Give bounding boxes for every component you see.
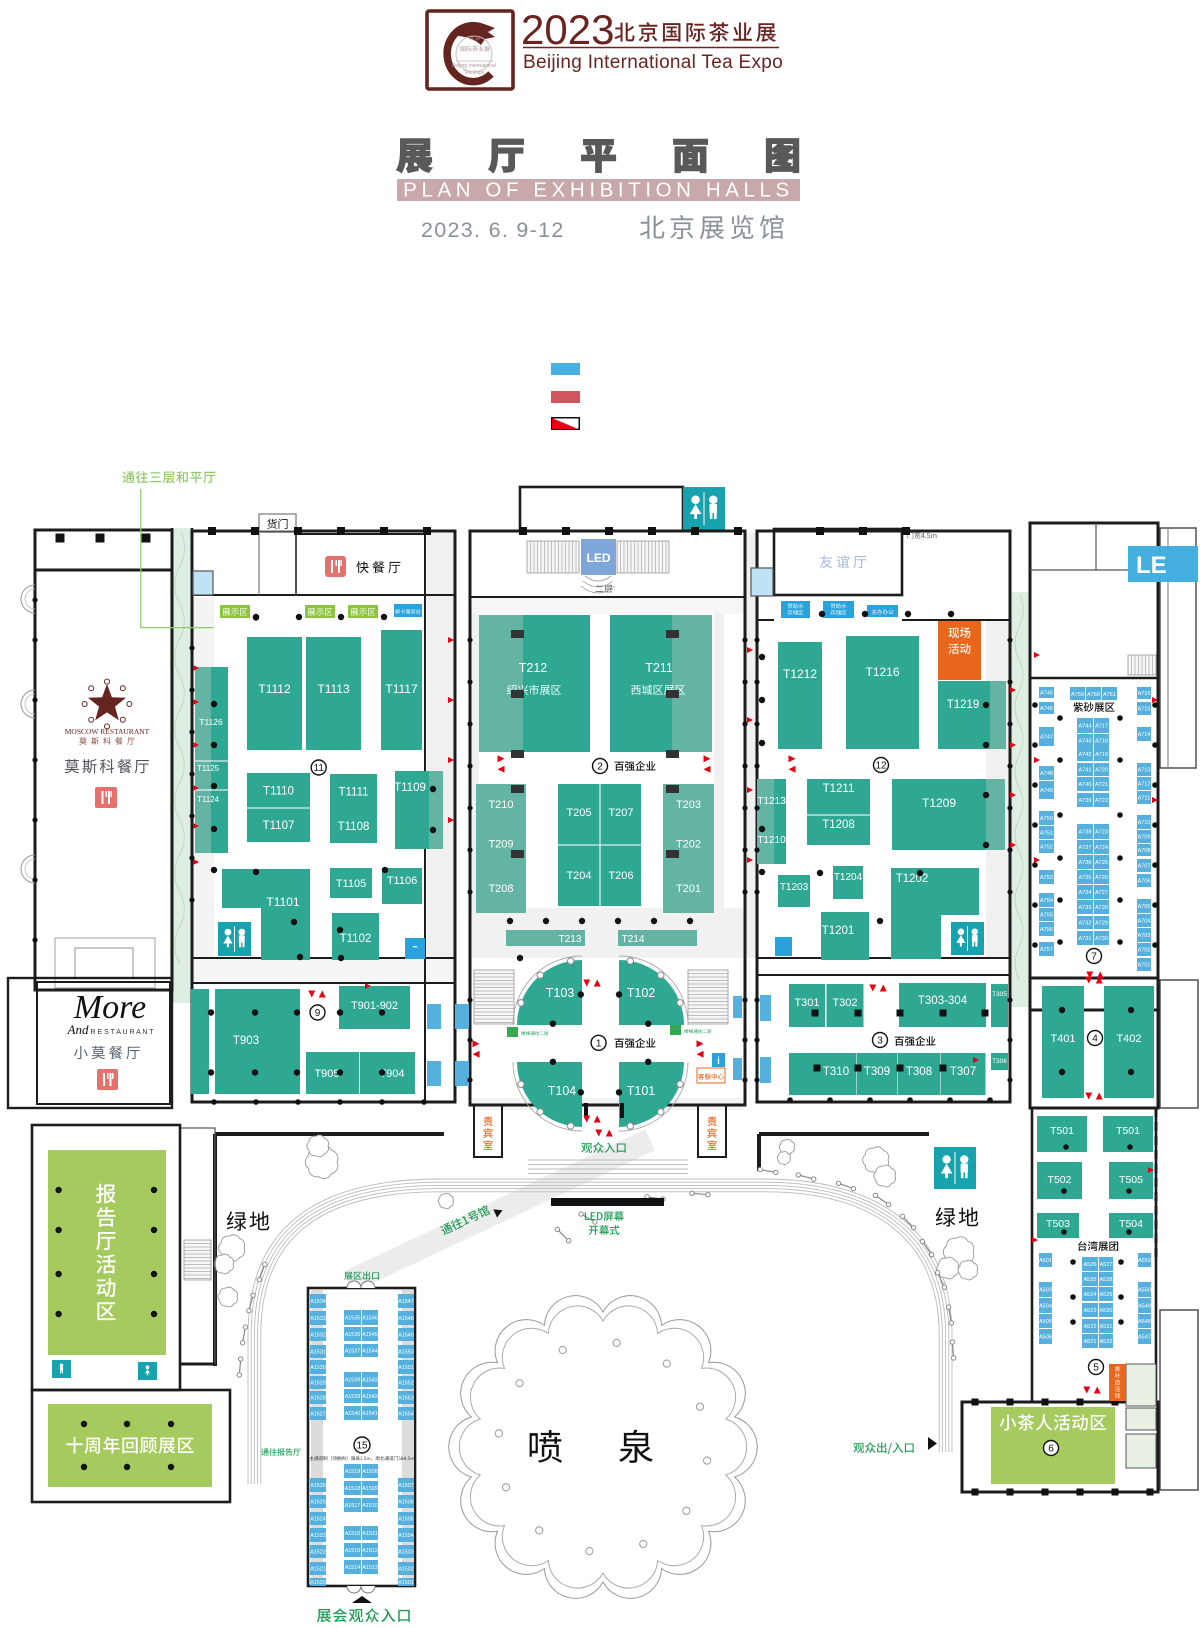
svg-text:More: More: [73, 989, 146, 1026]
svg-text:A1549: A1549: [398, 1332, 414, 1338]
svg-text:T1108: T1108: [338, 821, 370, 833]
svg-text:A732: A732: [1078, 920, 1091, 926]
svg-text:T401: T401: [1050, 1033, 1075, 1045]
svg-text:T210: T210: [488, 799, 513, 811]
svg-text:T207: T207: [608, 807, 633, 819]
svg-text:A1516: A1516: [345, 1531, 361, 1537]
svg-text:T1110: T1110: [263, 786, 294, 798]
svg-text:A1541: A1541: [362, 1411, 378, 1417]
svg-text:A1520: A1520: [310, 1580, 326, 1586]
svg-text:A750: A750: [1040, 816, 1053, 822]
svg-text:T103: T103: [546, 986, 575, 1000]
svg-text:2023: 2023: [521, 6, 614, 53]
svg-text:A501: A501: [1039, 1258, 1052, 1264]
svg-text:Beijing International Tea Expo: Beijing International Tea Expo: [523, 52, 783, 73]
svg-text:A1551: A1551: [398, 1365, 414, 1371]
svg-text:T1219: T1219: [947, 699, 980, 711]
svg-text:A530: A530: [1099, 1308, 1112, 1314]
svg-text:A743: A743: [1078, 738, 1091, 744]
svg-text:7: 7: [1091, 952, 1097, 963]
svg-text:T303-304: T303-304: [918, 995, 968, 1007]
svg-text:15: 15: [356, 1441, 368, 1452]
svg-text:T202: T202: [676, 838, 701, 850]
svg-text:T505: T505: [1119, 1174, 1143, 1186]
svg-text:T310: T310: [823, 1066, 849, 1078]
svg-text:A715: A715: [1137, 706, 1150, 712]
svg-text:A755: A755: [1040, 912, 1053, 918]
svg-text:A753: A753: [1040, 875, 1053, 881]
svg-text:T1126: T1126: [199, 717, 223, 727]
svg-text:A1550: A1550: [398, 1349, 414, 1355]
svg-text:A505: A505: [1039, 1319, 1052, 1325]
svg-text:A1518: A1518: [345, 1486, 361, 1492]
svg-text:T213: T213: [559, 934, 582, 945]
svg-text:T402: T402: [1116, 1033, 1141, 1045]
svg-text:A1503: A1503: [398, 1549, 414, 1555]
svg-text:A521: A521: [1083, 1339, 1096, 1345]
svg-text:A754: A754: [1040, 898, 1053, 904]
svg-text:A1506: A1506: [398, 1499, 414, 1505]
svg-text:A738: A738: [1078, 829, 1091, 835]
svg-text:A706: A706: [1137, 878, 1150, 884]
svg-text:A1521: A1521: [310, 1566, 326, 1572]
svg-text:A1508: A1508: [362, 1469, 378, 1475]
svg-text:A728: A728: [1095, 905, 1108, 911]
svg-text:T302: T302: [832, 997, 857, 1009]
svg-text:T1107: T1107: [263, 820, 295, 832]
svg-text:A704: A704: [1137, 918, 1150, 924]
svg-text:~: ~: [412, 942, 417, 952]
svg-text:T901-902: T901-902: [351, 1000, 398, 1012]
svg-text:A1511: A1511: [362, 1531, 377, 1537]
svg-text:A739: A739: [1078, 798, 1091, 804]
svg-text:A752: A752: [1040, 844, 1053, 850]
svg-text:And: And: [67, 1022, 89, 1037]
svg-text:T903: T903: [233, 1035, 259, 1047]
svg-text:A716: A716: [1137, 691, 1150, 697]
svg-text:T501: T501: [1116, 1125, 1140, 1137]
svg-text:A711: A711: [1138, 795, 1151, 801]
svg-text:T206: T206: [608, 870, 633, 882]
svg-text:T1125: T1125: [197, 764, 220, 773]
svg-text:A1538: A1538: [345, 1377, 361, 1383]
svg-text:A760: A760: [1087, 692, 1100, 698]
svg-text:A1537: A1537: [345, 1348, 361, 1354]
svg-text:T1102: T1102: [340, 933, 372, 945]
svg-text:T201: T201: [676, 883, 701, 895]
svg-text:T503: T503: [1046, 1218, 1070, 1230]
svg-text:A712: A712: [1137, 781, 1150, 787]
svg-text:A719: A719: [1095, 752, 1108, 758]
svg-text:A532: A532: [1099, 1339, 1112, 1345]
svg-text:A1510: A1510: [362, 1503, 378, 1509]
svg-text:A525: A525: [1083, 1277, 1096, 1283]
svg-text:T301: T301: [794, 997, 819, 1009]
svg-text:A1526: A1526: [310, 1483, 326, 1489]
svg-text:A523: A523: [1083, 1308, 1096, 1314]
svg-text:A1535: A1535: [345, 1315, 361, 1321]
svg-text:Tea Expo: Tea Expo: [464, 70, 485, 76]
svg-text:A718: A718: [1095, 738, 1108, 744]
svg-text:A722: A722: [1095, 798, 1108, 804]
svg-text:T1111: T1111: [338, 787, 368, 799]
svg-text:A1546: A1546: [362, 1315, 378, 1321]
svg-text:4: 4: [1092, 1034, 1098, 1045]
svg-text:A550: A550: [1138, 1287, 1151, 1293]
svg-text:A1523: A1523: [310, 1533, 326, 1539]
svg-text:A1534: A1534: [310, 1299, 326, 1305]
svg-text:A1547: A1547: [398, 1299, 414, 1305]
svg-text:T1117: T1117: [385, 682, 418, 696]
svg-text:A547: A547: [1138, 1334, 1151, 1340]
svg-text:T212: T212: [519, 661, 548, 675]
svg-text:A705: A705: [1137, 904, 1150, 910]
svg-text:T101: T101: [627, 1084, 656, 1098]
svg-text:T308: T308: [906, 1066, 932, 1078]
svg-text:6: 6: [1048, 1444, 1054, 1455]
svg-text:T203: T203: [676, 799, 701, 811]
svg-text:T205: T205: [566, 807, 591, 819]
svg-text:A524: A524: [1083, 1292, 1096, 1298]
svg-text:T104: T104: [548, 1084, 577, 1098]
svg-text:A549: A549: [1138, 1303, 1151, 1309]
svg-text:T1203: T1203: [780, 882, 809, 893]
svg-text:A1528: A1528: [310, 1395, 326, 1401]
svg-text:T309: T309: [864, 1066, 890, 1078]
svg-text:A744: A744: [1078, 723, 1091, 729]
svg-text:A726: A726: [1095, 875, 1108, 881]
svg-text:R E S T A U R A N T: R E S T A U R A N T: [90, 1029, 154, 1036]
svg-text:2: 2: [597, 762, 603, 773]
svg-text:i: i: [717, 1056, 720, 1067]
svg-text:A737: A737: [1078, 845, 1091, 851]
svg-text:T1216: T1216: [865, 665, 899, 679]
svg-text:11: 11: [314, 763, 325, 774]
svg-text:A1540: A1540: [345, 1411, 361, 1417]
svg-text:A725: A725: [1095, 860, 1108, 866]
svg-text:MOSCOW RESTAURANT: MOSCOW RESTAURANT: [65, 727, 150, 736]
svg-text:T1124: T1124: [197, 795, 220, 804]
svg-text:5: 5: [1093, 1363, 1099, 1374]
svg-text:Beijing International: Beijing International: [452, 63, 496, 69]
svg-text:A745: A745: [1040, 690, 1053, 696]
svg-text:A1527: A1527: [310, 1411, 326, 1417]
svg-text:T1201: T1201: [822, 925, 855, 937]
svg-text:A727: A727: [1095, 890, 1108, 896]
svg-text:T209: T209: [488, 838, 513, 850]
svg-text:A703: A703: [1137, 933, 1150, 939]
svg-text:A742: A742: [1078, 752, 1091, 758]
svg-text:12: 12: [875, 761, 887, 772]
svg-text:T1105: T1105: [336, 878, 366, 890]
svg-text:T1112: T1112: [258, 682, 291, 696]
svg-text:A1519: A1519: [345, 1469, 361, 1475]
svg-text:A717: A717: [1095, 723, 1108, 729]
svg-text:A709: A709: [1137, 834, 1150, 840]
svg-text:A1545: A1545: [362, 1332, 378, 1338]
svg-text:T1204: T1204: [834, 872, 863, 883]
svg-text:T305: T305: [992, 991, 1007, 998]
svg-text:A1513: A1513: [362, 1565, 378, 1571]
svg-text:A1530: A1530: [310, 1365, 326, 1371]
svg-text:A1502: A1502: [398, 1566, 414, 1572]
svg-text:T905: T905: [314, 1068, 339, 1080]
svg-text:T307: T307: [950, 1066, 976, 1078]
svg-text:T1209: T1209: [922, 796, 956, 810]
svg-text:A731: A731: [1078, 936, 1091, 942]
svg-text:A503: A503: [1039, 1287, 1052, 1293]
svg-text:A1515: A1515: [345, 1548, 361, 1554]
svg-text:T211: T211: [645, 661, 673, 675]
svg-text:A1533: A1533: [310, 1316, 326, 1322]
svg-text:A1504: A1504: [398, 1533, 414, 1539]
svg-text:A736: A736: [1078, 860, 1091, 866]
svg-text:A1544: A1544: [362, 1348, 378, 1354]
svg-text:T214: T214: [622, 934, 645, 945]
svg-text:A527: A527: [1099, 1262, 1112, 1268]
svg-text:A1509: A1509: [362, 1486, 378, 1492]
svg-text:LED: LED: [587, 551, 611, 565]
svg-text:T1106: T1106: [387, 875, 417, 887]
svg-text:A1529: A1529: [310, 1380, 326, 1386]
svg-text:A548: A548: [1138, 1319, 1151, 1325]
svg-text:9: 9: [315, 1008, 321, 1019]
svg-text:3: 3: [877, 1036, 883, 1047]
svg-text:A1525: A1525: [310, 1499, 326, 1505]
svg-text:A504: A504: [1039, 1303, 1052, 1309]
svg-text:A748: A748: [1040, 771, 1053, 777]
svg-text:A730: A730: [1095, 936, 1108, 942]
svg-text:A733: A733: [1078, 905, 1091, 911]
svg-text:T504: T504: [1119, 1218, 1143, 1230]
svg-text:A740: A740: [1078, 782, 1091, 788]
svg-text:A724: A724: [1095, 845, 1108, 851]
svg-text:A708: A708: [1137, 848, 1150, 854]
svg-text:A1524: A1524: [310, 1516, 326, 1522]
svg-text:T208: T208: [488, 883, 513, 895]
svg-text:A1543: A1543: [362, 1377, 378, 1383]
svg-text:A749: A749: [1040, 788, 1053, 794]
svg-text:2023. 6. 9-12: 2023. 6. 9-12: [421, 218, 565, 242]
svg-text:T1208: T1208: [822, 819, 855, 831]
svg-text:A528: A528: [1099, 1277, 1112, 1283]
svg-text:A1507: A1507: [398, 1483, 414, 1489]
svg-text:A1554: A1554: [398, 1411, 414, 1417]
svg-text:A702: A702: [1137, 947, 1150, 953]
svg-text:A735: A735: [1078, 875, 1091, 881]
svg-text:A756: A756: [1040, 927, 1053, 933]
svg-text:T501: T501: [1050, 1125, 1074, 1137]
svg-text:A751: A751: [1040, 830, 1053, 836]
svg-text:A746: A746: [1040, 706, 1053, 712]
svg-text:A1553: A1553: [398, 1395, 414, 1401]
svg-text:T1213: T1213: [757, 796, 786, 807]
svg-text:A720: A720: [1095, 767, 1108, 773]
svg-text:A1552: A1552: [398, 1380, 414, 1386]
svg-text:A1522: A1522: [310, 1549, 326, 1555]
svg-text:PLAN OF EXHIBITION HALLS: PLAN OF EXHIBITION HALLS: [403, 179, 794, 202]
svg-text:A1505: A1505: [398, 1516, 414, 1522]
svg-text:A522: A522: [1083, 1324, 1096, 1330]
svg-text:A723: A723: [1095, 829, 1108, 835]
svg-text:T502: T502: [1048, 1174, 1072, 1186]
svg-text:A529: A529: [1099, 1292, 1112, 1298]
svg-text:T1109: T1109: [394, 782, 426, 794]
svg-text:A707: A707: [1137, 863, 1150, 869]
svg-text:A531: A531: [1099, 1324, 1112, 1330]
svg-text:A1531: A1531: [310, 1349, 326, 1355]
svg-text:A759: A759: [1071, 692, 1084, 698]
svg-text:A552: A552: [1138, 1258, 1151, 1264]
svg-text:A714: A714: [1137, 732, 1150, 738]
svg-text:A757: A757: [1040, 947, 1053, 953]
svg-text:A761: A761: [1103, 692, 1116, 698]
svg-text:A1501: A1501: [398, 1580, 414, 1586]
svg-text:A734: A734: [1078, 890, 1091, 896]
svg-text:A721: A721: [1095, 782, 1108, 788]
svg-text:A741: A741: [1078, 767, 1091, 773]
svg-text:A1532: A1532: [310, 1332, 326, 1338]
svg-text:A701: A701: [1137, 962, 1150, 968]
svg-text:T1202: T1202: [896, 873, 929, 885]
svg-text:A729: A729: [1095, 920, 1108, 926]
svg-text:A1539: A1539: [345, 1394, 361, 1400]
svg-text:T1212: T1212: [783, 667, 817, 681]
svg-text:A1517: A1517: [345, 1503, 361, 1509]
svg-text:A713: A713: [1137, 767, 1150, 773]
svg-text:A710: A710: [1137, 820, 1150, 826]
svg-text:T102: T102: [627, 986, 656, 1000]
svg-text:T1211: T1211: [823, 783, 855, 795]
svg-text:A1514: A1514: [345, 1565, 361, 1571]
svg-text:T306: T306: [992, 1058, 1007, 1065]
svg-text:T1113: T1113: [317, 682, 350, 696]
svg-text:A526: A526: [1083, 1262, 1096, 1268]
svg-text:A747: A747: [1040, 734, 1053, 740]
svg-text:LE: LE: [1136, 552, 1167, 579]
svg-text:A506: A506: [1039, 1334, 1052, 1340]
svg-text:A1548: A1548: [398, 1316, 414, 1322]
svg-text:1: 1: [596, 1038, 602, 1049]
svg-text:A1536: A1536: [345, 1332, 361, 1338]
svg-text:A1512: A1512: [362, 1548, 378, 1554]
svg-text:T204: T204: [566, 870, 591, 882]
svg-text:A1542: A1542: [362, 1394, 378, 1400]
svg-text:T1210: T1210: [757, 835, 786, 846]
svg-text:T1101: T1101: [266, 895, 299, 909]
